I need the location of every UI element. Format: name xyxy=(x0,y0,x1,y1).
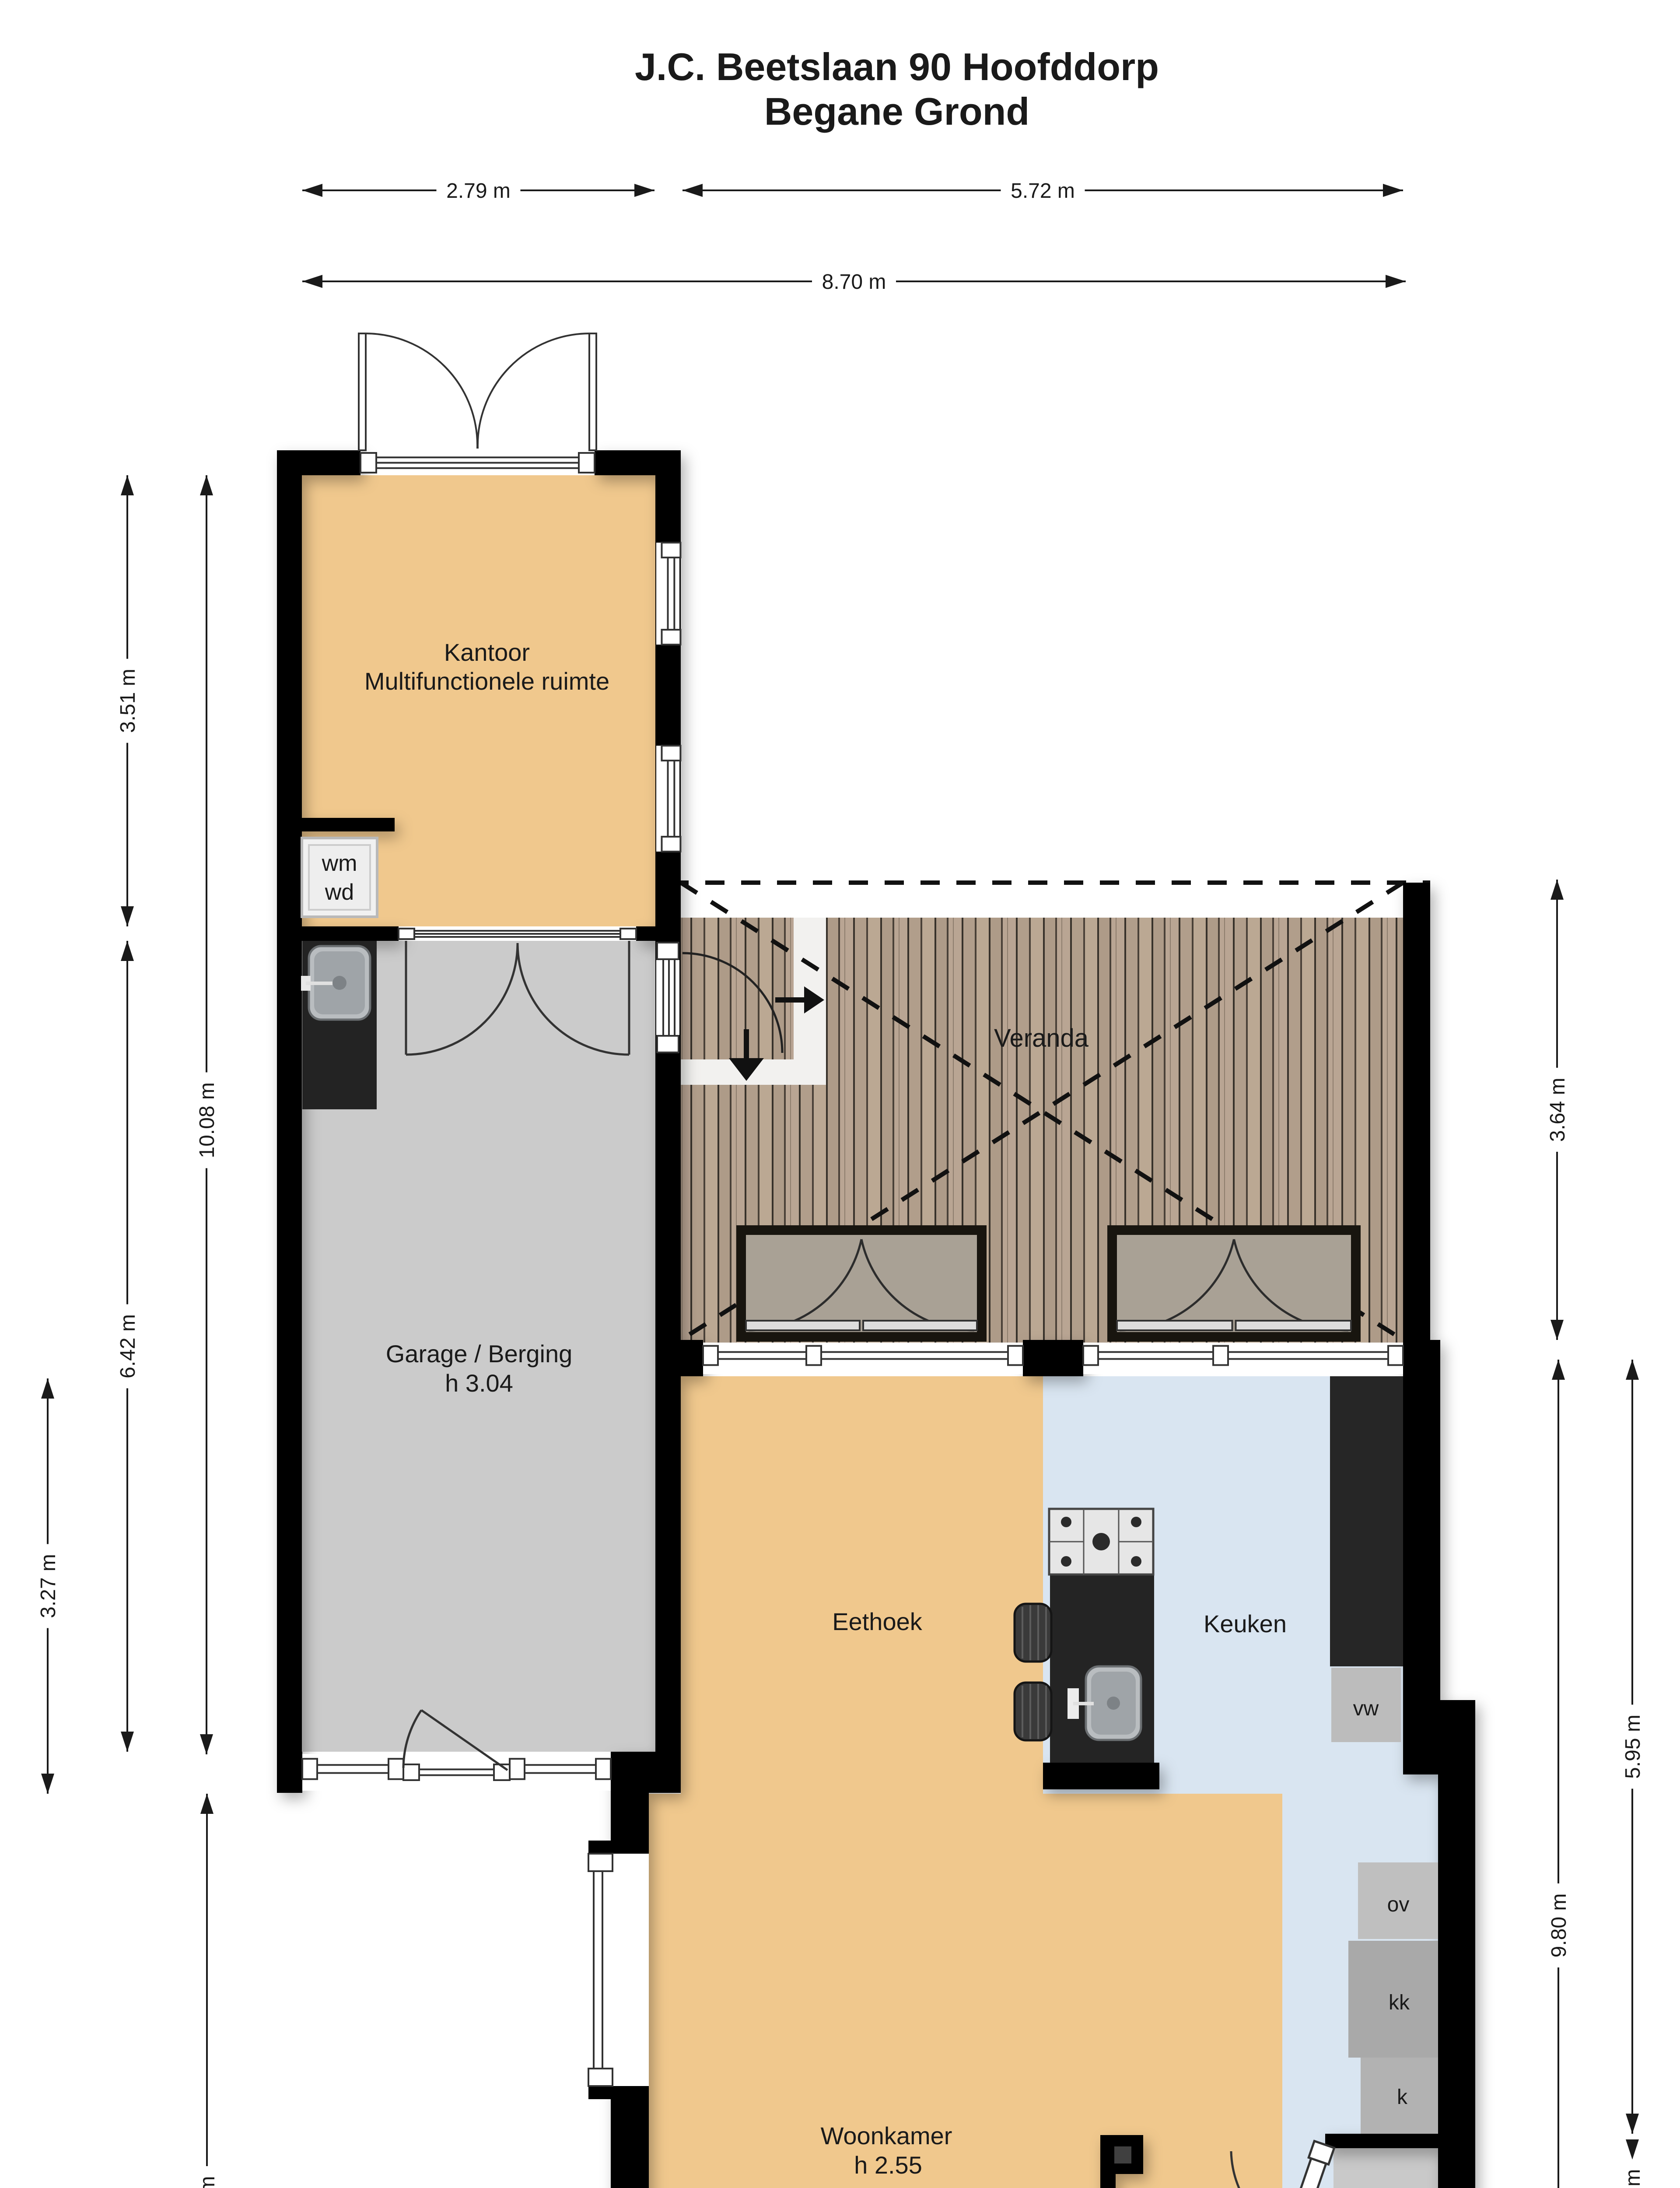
svg-text:10.08 m: 10.08 m xyxy=(196,1082,219,1158)
svg-text:6.42 m: 6.42 m xyxy=(116,1314,140,1378)
svg-text:Begane Grond: Begane Grond xyxy=(764,90,1029,133)
svg-text:Veranda: Veranda xyxy=(994,1024,1089,1052)
svg-text:Woonkamer: Woonkamer xyxy=(821,2122,952,2149)
svg-text:3.27 m: 3.27 m xyxy=(37,1554,60,1618)
svg-text:h 2.55: h 2.55 xyxy=(854,2151,922,2179)
svg-text:0.84 m: 0.84 m xyxy=(1621,2169,1645,2188)
svg-text:kk: kk xyxy=(1389,1991,1410,2014)
svg-text:Eethoek: Eethoek xyxy=(832,1608,922,1635)
svg-text:ov: ov xyxy=(1387,1893,1410,1916)
svg-text:5.95 m: 5.95 m xyxy=(1621,1715,1645,1779)
svg-text:3.51 m: 3.51 m xyxy=(116,669,140,733)
svg-text:k: k xyxy=(1397,2086,1408,2109)
svg-text:wm: wm xyxy=(322,851,357,876)
svg-text:8.70 m: 8.70 m xyxy=(822,270,886,294)
svg-text:wd: wd xyxy=(325,880,354,905)
svg-text:h 3.04: h 3.04 xyxy=(445,1369,513,1397)
svg-text:J.C. Beetslaan 90 Hoofddorp: J.C. Beetslaan 90 Hoofddorp xyxy=(635,45,1159,88)
svg-text:5.72 m: 5.72 m xyxy=(1011,179,1075,203)
svg-text:9.80 m: 9.80 m xyxy=(1547,1893,1571,1958)
svg-text:6.54 m: 6.54 m xyxy=(196,2176,219,2188)
svg-text:Garage / Berging: Garage / Berging xyxy=(386,1340,572,1367)
svg-text:Keuken: Keuken xyxy=(1204,1610,1287,1637)
svg-text:Multifunctionele ruimte: Multifunctionele ruimte xyxy=(364,667,609,695)
svg-text:vw: vw xyxy=(1353,1697,1379,1720)
svg-text:2.79 m: 2.79 m xyxy=(446,179,511,203)
svg-text:Kantoor: Kantoor xyxy=(444,638,530,666)
svg-text:3.64 m: 3.64 m xyxy=(1546,1078,1569,1142)
